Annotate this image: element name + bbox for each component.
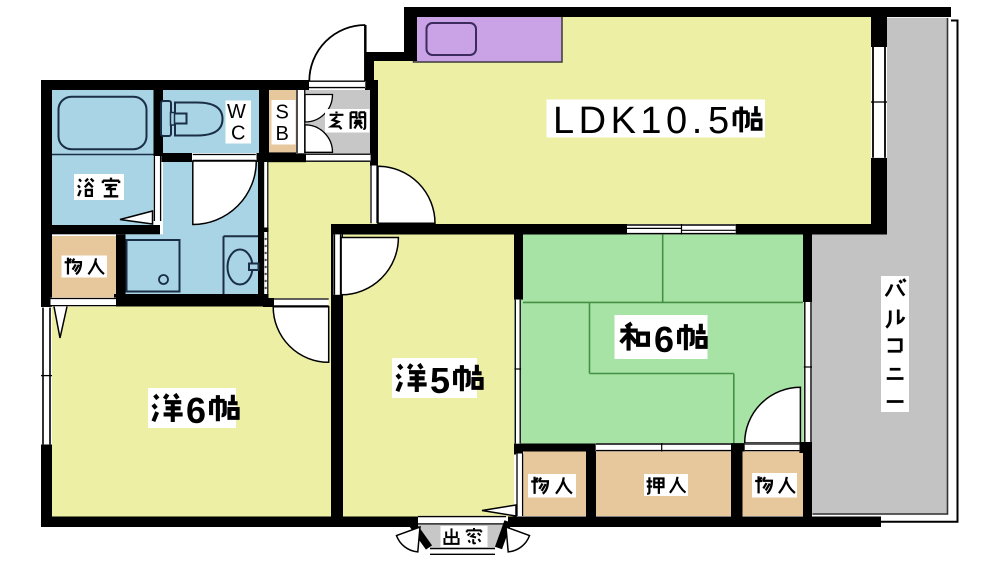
svg-text:C: C: [231, 123, 245, 145]
svg-text:6: 6: [654, 319, 674, 360]
svg-text:B: B: [276, 123, 289, 145]
svg-text:5: 5: [708, 100, 729, 142]
svg-text:LDK10.: LDK10.: [553, 100, 707, 142]
svg-text:6: 6: [186, 390, 206, 431]
svg-text:S: S: [276, 102, 289, 124]
svg-text:5: 5: [430, 360, 450, 401]
svg-text:W: W: [227, 101, 246, 123]
